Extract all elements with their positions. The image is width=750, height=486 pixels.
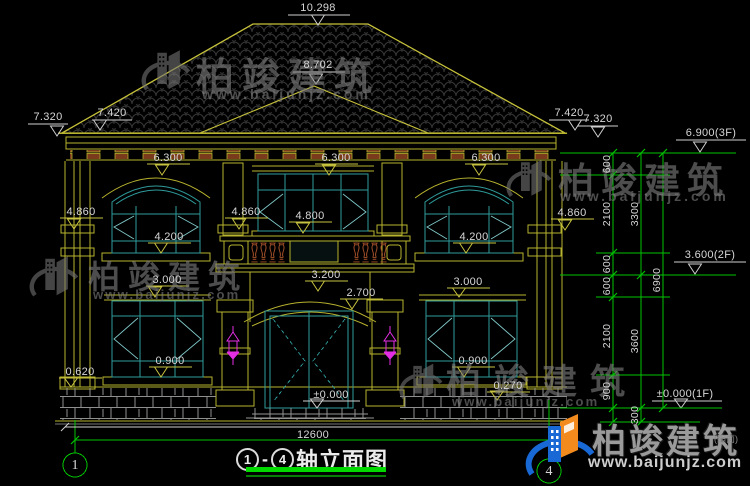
dim-total-height: 6900 xyxy=(652,268,664,293)
dim-capital: 4.860 xyxy=(66,206,95,218)
dim-seg: 2100 xyxy=(602,324,614,349)
dim-window-top-1f: 3.000 xyxy=(152,274,181,286)
dim-ridge: 10.298 xyxy=(300,2,335,14)
dim-threshold: ±0.000 xyxy=(313,389,348,401)
dim-ledge: 0.270 xyxy=(493,380,522,392)
hood-2f-left xyxy=(102,178,210,198)
title-underline xyxy=(246,467,386,472)
lamp-left xyxy=(227,326,239,365)
dim-seg: 600 xyxy=(602,155,614,173)
balcony-panel xyxy=(290,241,338,262)
dim-window-top: 6.300 xyxy=(153,152,182,164)
column-2f-right xyxy=(382,163,402,235)
dim-seg: 600 xyxy=(602,255,614,273)
dim-eave: 7.420 xyxy=(97,107,126,119)
dim-seg: 900 xyxy=(602,382,614,400)
level-2f: 3.600(2F) xyxy=(685,249,735,261)
dim-center-sill: 4.800 xyxy=(295,210,324,222)
watermark-site: www.baijunjz.com xyxy=(560,188,729,204)
dim-door-arch: 2.700 xyxy=(346,287,375,299)
dim-capital: 4.860 xyxy=(231,206,260,218)
dim-sill-2f: 4.200 xyxy=(459,231,488,243)
watermark-logo-icon xyxy=(505,152,553,206)
level-3f: 6.900(3F) xyxy=(686,127,736,139)
axis-number-1: 1 xyxy=(72,458,79,474)
dim-eave: 7.320 xyxy=(33,111,62,123)
watermark-site: www.baijunjz.com xyxy=(93,287,240,302)
dim-arch-top: 3.200 xyxy=(311,269,340,281)
dim-sill-1f: 0.900 xyxy=(155,355,184,367)
dim-sill-2f: 4.200 xyxy=(154,231,183,243)
dim-window-top-1f: 3.000 xyxy=(453,276,482,288)
dim-sill-1f: 0.900 xyxy=(458,355,487,367)
dim-total-width: 12600 xyxy=(297,429,329,441)
dim-capital: 4.860 xyxy=(557,207,586,219)
dim-window-top: 6.300 xyxy=(471,152,500,164)
dim-seg: 3300 xyxy=(630,202,642,227)
level-1f: ±0.000(1F) xyxy=(657,388,714,400)
dim-ledge: 0.620 xyxy=(65,366,94,378)
lamp-right xyxy=(384,326,396,365)
company-brand-suffix: (缩面) xyxy=(714,432,738,445)
column-2f-left xyxy=(223,163,243,235)
dim-window-top: 6.300 xyxy=(321,152,350,164)
dim-seg: 3600 xyxy=(630,329,642,354)
watermark-logo-icon xyxy=(398,354,444,410)
title-underline-thin xyxy=(246,475,386,477)
dim-sub-ridge: 8.702 xyxy=(303,59,332,71)
cad-elevation-drawing: 柏竣建筑 www.baijunjz.com 柏竣建筑 www.baijunjz.… xyxy=(0,0,750,486)
entry-arch-inner xyxy=(252,312,368,326)
watermark-logo-icon xyxy=(28,248,80,306)
company-logo-icon xyxy=(518,404,598,484)
watermark-site: www.baijunjz.com xyxy=(202,86,371,102)
company-site: www.baijunjz.com xyxy=(588,454,742,472)
dim-seg: 600 xyxy=(602,277,614,295)
wall-lamps xyxy=(227,326,396,365)
watermark-logo-icon xyxy=(140,42,192,100)
porch-column-left xyxy=(222,312,248,390)
dim-seg: 2100 xyxy=(602,202,614,227)
cornice-2f-center xyxy=(252,166,374,171)
dim-eave: 7.420 xyxy=(554,107,583,119)
dim-eave: 7.320 xyxy=(583,113,612,125)
